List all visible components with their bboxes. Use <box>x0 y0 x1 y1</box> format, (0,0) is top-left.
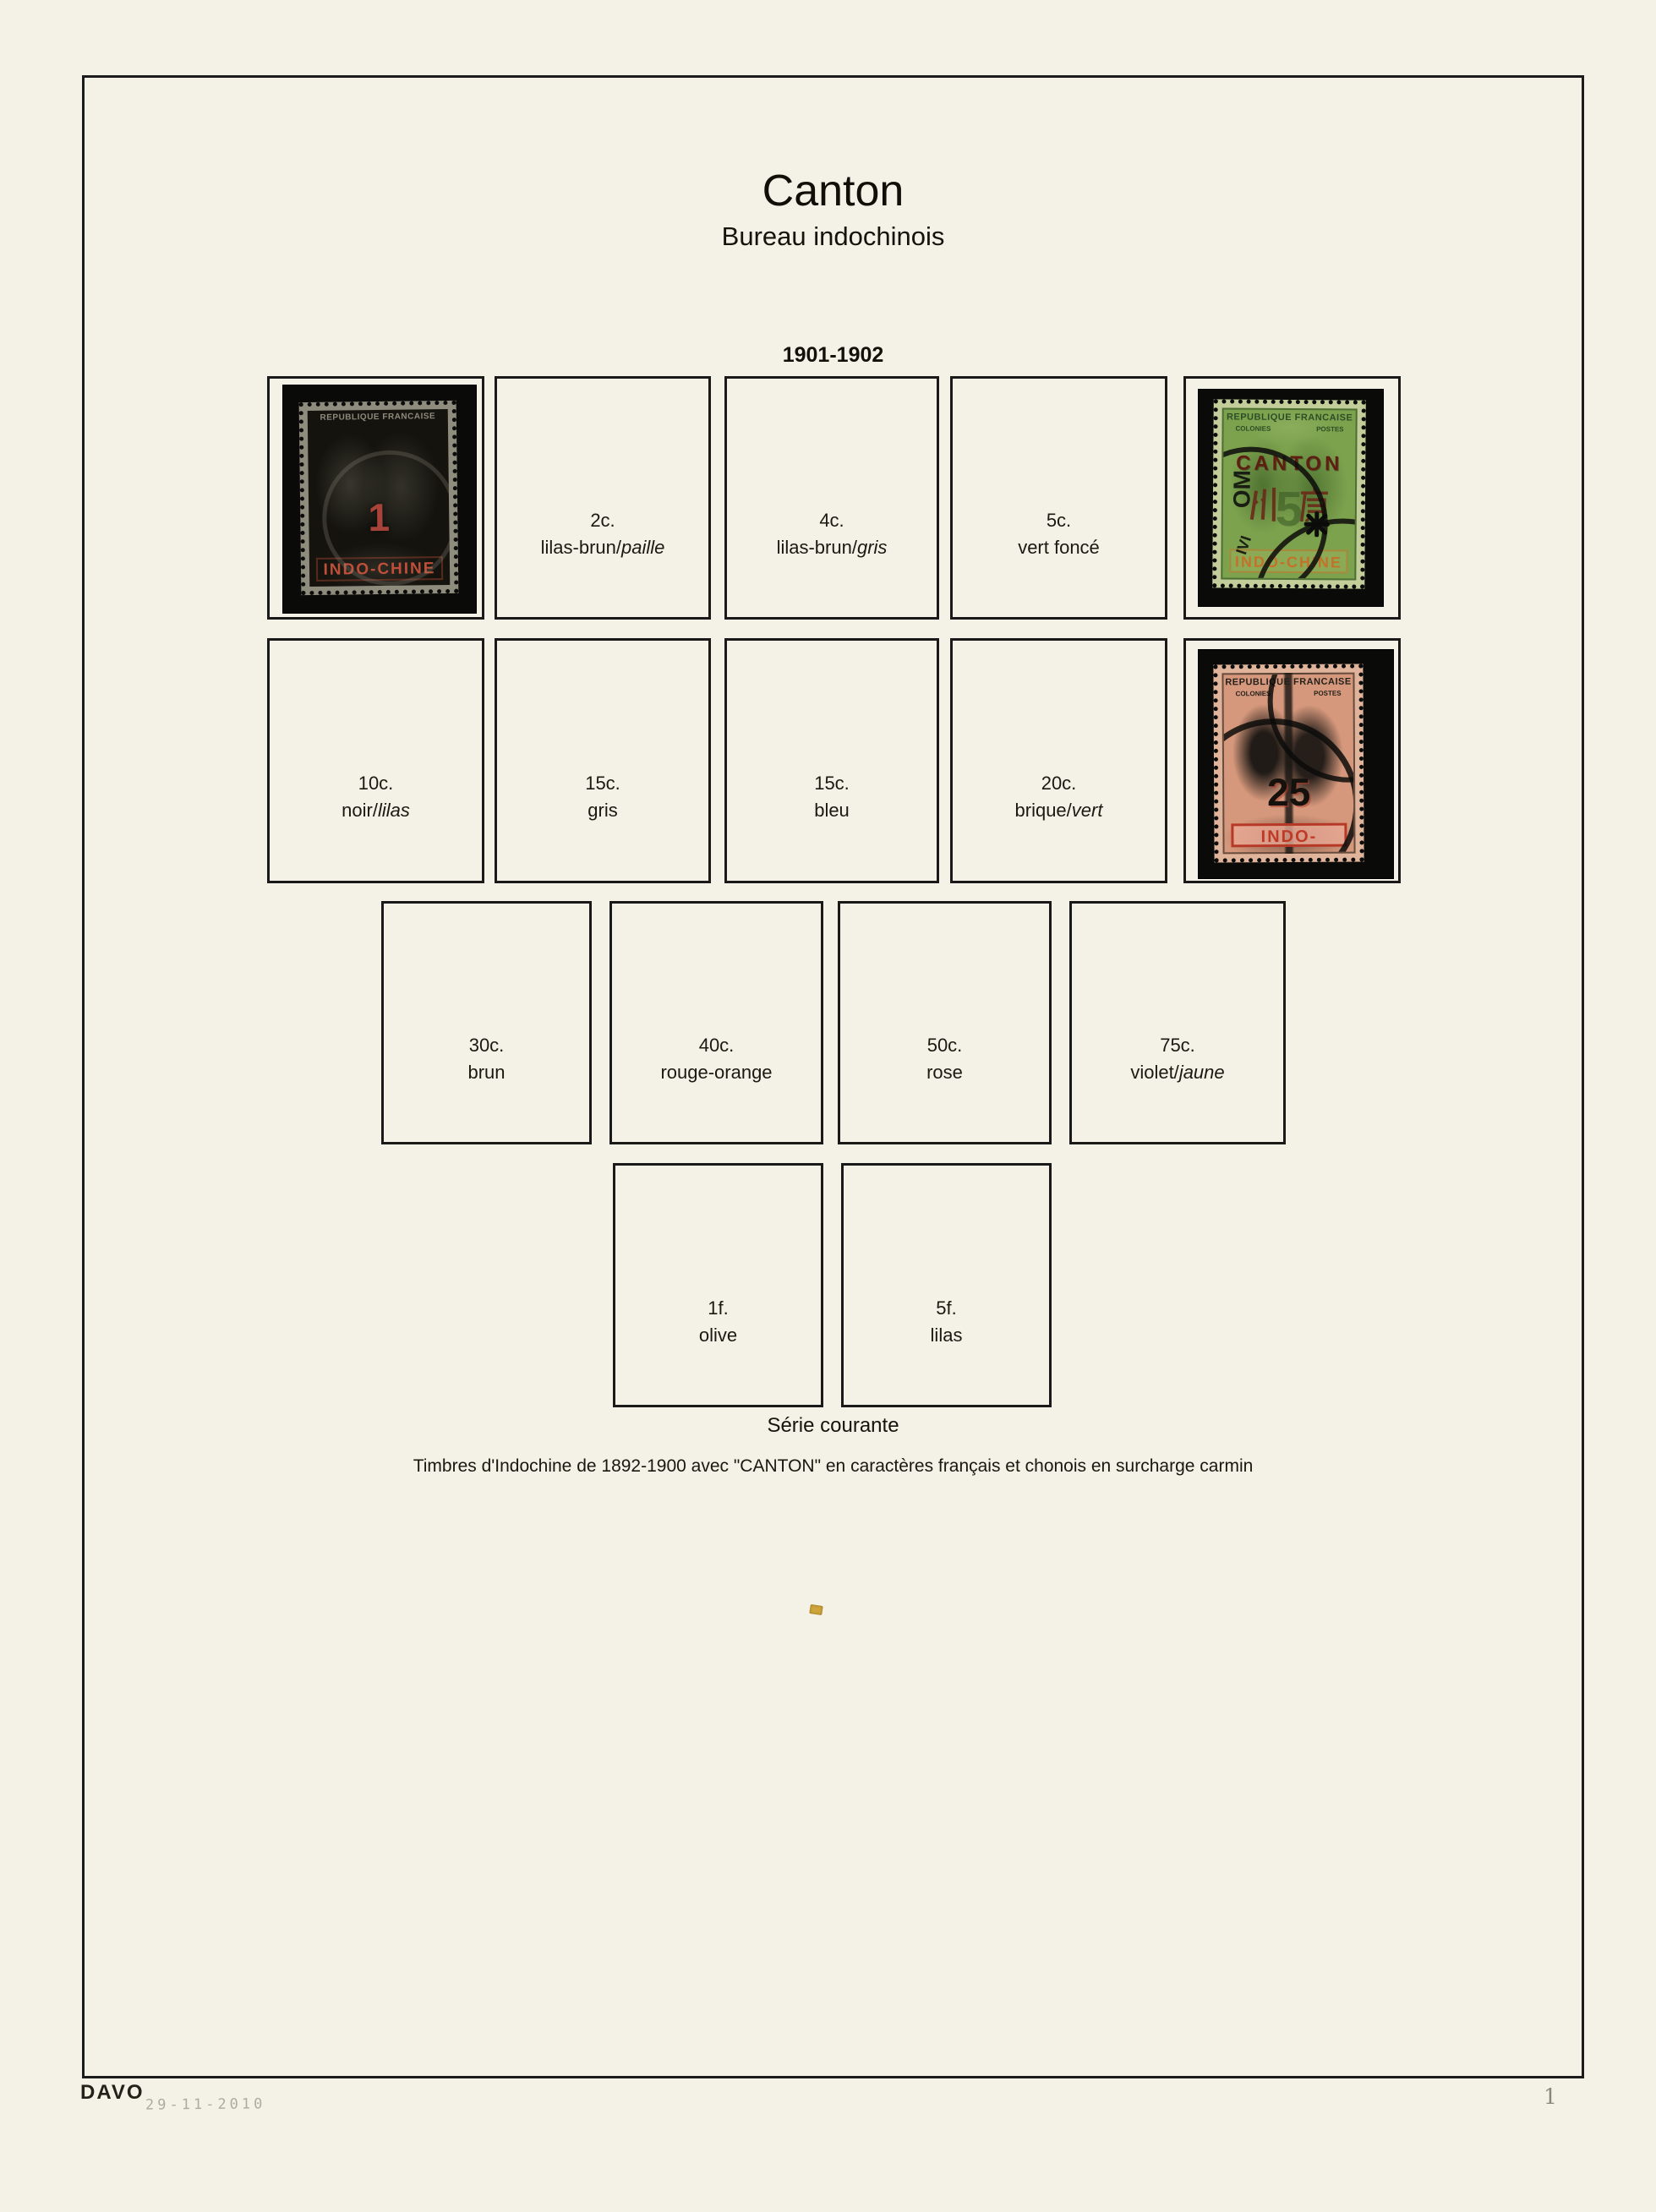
stamp-box-label-value: 5c. <box>953 507 1165 534</box>
stamp-box-label-value: 15c. <box>727 770 937 797</box>
stamp-box-label-value: 2c. <box>497 507 708 534</box>
stamp-box-15c-bleu: 15c. bleu <box>724 638 939 883</box>
stamp-25c-black-rose: REPUBLIQUE FRANCAISE COLONIES POSTES 25 … <box>1213 664 1364 863</box>
stamp-1c-indochine: REPUBLIQUE FRANCAISE 1 INDO-CHINE <box>299 401 459 595</box>
stamp-box-label-color: olive <box>615 1322 821 1349</box>
stamp-box-label-color: lilas <box>844 1322 1049 1349</box>
stamp-box-label-color: vert foncé <box>953 534 1165 561</box>
page-title: Canton <box>82 167 1584 216</box>
stamp-box-label: 15c. gris <box>497 770 708 824</box>
stamp-box-label-value: 15c. <box>497 770 708 797</box>
stamp-box-label-color: lilas-brun/gris <box>727 534 937 561</box>
stamp-box-label-color: rose <box>840 1059 1049 1086</box>
stamp-box-label-color: bleu <box>727 797 937 824</box>
stamp-box-10c: 10c. noir/lilas <box>267 638 484 883</box>
stamp-box-4c: 4c. lilas-brun/gris <box>724 376 939 620</box>
stamp-box-label-value: 40c. <box>612 1032 821 1059</box>
stamp-box-label-color: gris <box>497 797 708 824</box>
stamp-box-label: 5f. lilas <box>844 1295 1049 1349</box>
stamp-subtext: COLONIES POSTES <box>1236 425 1344 434</box>
stamp-box-label-value: 50c. <box>840 1032 1049 1059</box>
stamp-box-label-value: 4c. <box>727 507 937 534</box>
postmark-letters: OM <box>1228 470 1255 508</box>
date-stamp: 29-11-2010 <box>145 2095 266 2113</box>
stamp-box-label: 1f. olive <box>615 1295 821 1349</box>
series-caption-title: Série courante <box>82 1414 1584 1438</box>
stamp-box-label-value: 20c. <box>953 770 1165 797</box>
stamp-1c-design: REPUBLIQUE FRANCAISE 1 INDO-CHINE <box>308 409 451 587</box>
page-header: Canton Bureau indochinois <box>82 167 1584 251</box>
page-number: 1 <box>1544 2084 1557 2109</box>
stamp-box-label: 75c. violet/jaune <box>1072 1032 1283 1086</box>
stamp-box-label-color: brun <box>384 1059 589 1086</box>
stamp-box-5f: 5f. lilas <box>841 1163 1052 1407</box>
stamp-box-5c-vert-fonce: 5c. vert foncé <box>950 376 1167 620</box>
stamp-box-label-value: 10c. <box>270 770 482 797</box>
stamp-top-text: REPUBLIQUE FRANCAISE <box>1224 412 1356 423</box>
stamp-box-label: 20c. brique/vert <box>953 770 1165 824</box>
series-caption-text: Timbres d'Indochine de 1892-1900 avec "C… <box>82 1456 1584 1477</box>
stamp-colonies-text: COLONIES <box>1236 425 1271 433</box>
paper-speck <box>809 1604 823 1615</box>
stamp-box-label-color: violet/jaune <box>1072 1059 1283 1086</box>
stamp-box-label-value: 5f. <box>844 1295 1049 1322</box>
stamp-top-text: REPUBLIQUE FRANCAISE <box>308 412 448 423</box>
stamp-box-50c: 50c. rose <box>838 901 1052 1144</box>
stamp-postes-text: POSTES <box>1316 425 1344 433</box>
stamp-box-label: 15c. bleu <box>727 770 937 824</box>
stamp-box-label-value: 1f. <box>615 1295 821 1322</box>
publisher-mark: DAVO <box>80 2081 145 2105</box>
page-subtitle: Bureau indochinois <box>82 222 1584 251</box>
stamp-box-label: 30c. brun <box>384 1032 589 1086</box>
stamp-box-15c-gris: 15c. gris <box>495 638 711 883</box>
stamp-box-label: 10c. noir/lilas <box>270 770 482 824</box>
stamp-box-label: 2c. lilas-brun/paille <box>497 507 708 561</box>
stamp-mount: REPUBLIQUE FRANCAISE 1 INDO-CHINE <box>283 385 476 613</box>
stamp-box-1f: 1f. olive <box>613 1163 823 1407</box>
stamp-box-1c: REPUBLIQUE FRANCAISE 1 INDO-CHINE <box>267 376 484 620</box>
stamp-box-label: 40c. rouge-orange <box>612 1032 821 1086</box>
stamp-box-5c: REPUBLIQUE FRANCAISE COLONIES POSTES 5 C… <box>1183 376 1401 620</box>
stamp-mount: REPUBLIQUE FRANCAISE COLONIES POSTES 5 C… <box>1199 390 1383 606</box>
stamp-box-30c: 30c. brun <box>381 901 592 1144</box>
section-heading: 1901-1902 <box>82 343 1584 368</box>
stamp-colonies-text: COLONIES <box>1236 690 1271 697</box>
stamp-box-label: 4c. lilas-brun/gris <box>727 507 937 561</box>
stamp-box-label: 50c. rose <box>840 1032 1049 1086</box>
stamp-box-2c: 2c. lilas-brun/paille <box>495 376 711 620</box>
stamp-box-20c: 20c. brique/vert <box>950 638 1167 883</box>
stamp-box-25c: REPUBLIQUE FRANCAISE COLONIES POSTES 25 … <box>1183 638 1401 883</box>
stamp-box-label-value: 30c. <box>384 1032 589 1059</box>
stamp-mount: REPUBLIQUE FRANCAISE COLONIES POSTES 25 … <box>1199 650 1393 878</box>
stamp-box-label-color: noir/lilas <box>270 797 482 824</box>
stamp-box-label-value: 75c. <box>1072 1032 1283 1059</box>
stamp-5c-design: REPUBLIQUE FRANCAISE COLONIES POSTES 5 C… <box>1221 407 1357 580</box>
album-page: Canton Bureau indochinois 1901-1902 REPU… <box>0 0 1656 2212</box>
stamp-box-label-color: brique/vert <box>953 797 1165 824</box>
stamp-box-label: 5c. vert foncé <box>953 507 1165 561</box>
stamp-box-label-color: lilas-brun/paille <box>497 534 708 561</box>
stamp-25c-design: REPUBLIQUE FRANCAISE COLONIES POSTES 25 … <box>1222 673 1355 855</box>
stamp-box-75c: 75c. violet/jaune <box>1069 901 1286 1144</box>
stamp-box-40c: 40c. rouge-orange <box>609 901 823 1144</box>
stamp-5c-canton-green: REPUBLIQUE FRANCAISE COLONIES POSTES 5 C… <box>1212 399 1366 588</box>
stamp-box-label-color: rouge-orange <box>612 1059 821 1086</box>
